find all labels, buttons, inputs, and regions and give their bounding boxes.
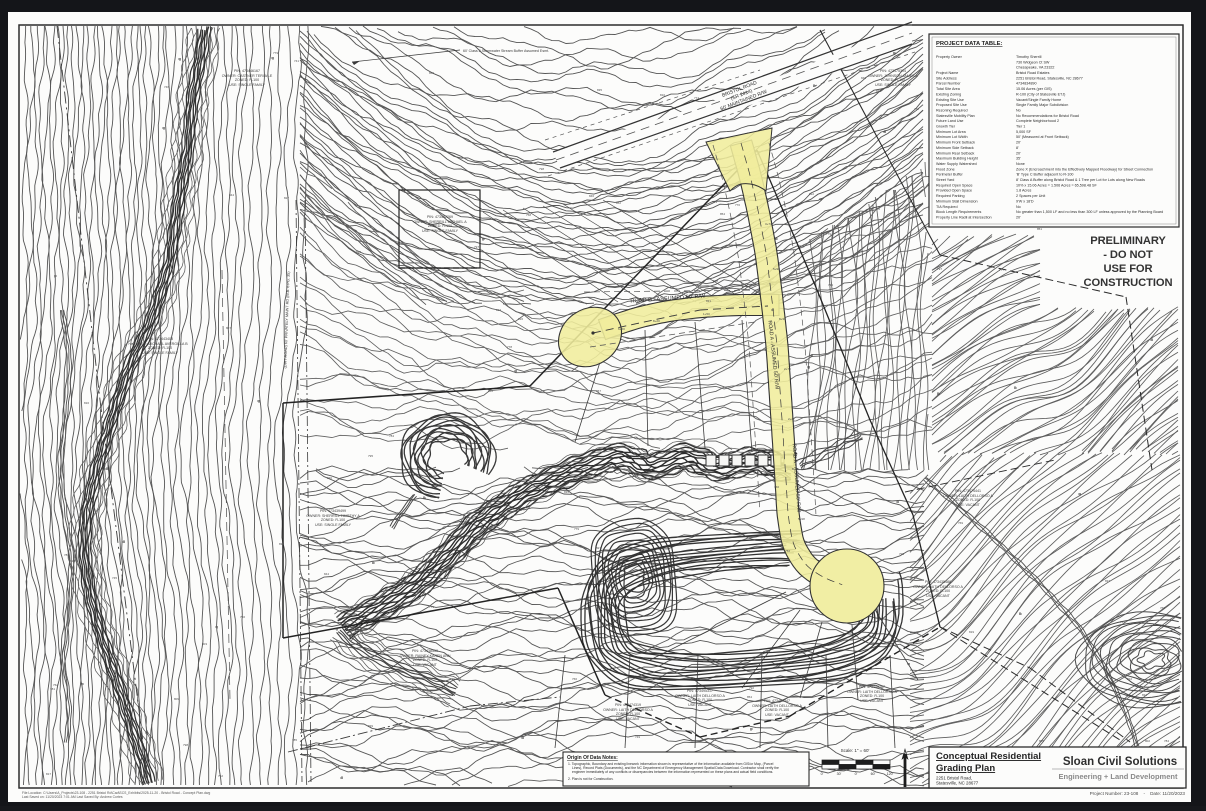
svg-text:Rezoning Required: Rezoning Required [936, 109, 968, 113]
svg-text:USE FOR: USE FOR [1103, 263, 1152, 275]
svg-text:784: 784 [389, 434, 394, 438]
svg-text:787: 787 [650, 685, 655, 689]
svg-text:2+73: 2+73 [784, 367, 791, 371]
svg-text:837: 837 [279, 542, 284, 546]
svg-text:8': 8' [1016, 146, 1019, 150]
svg-text:USE: SINGLE FAMILY: USE: SINGLE FAMILY [875, 83, 912, 87]
svg-text:779: 779 [273, 51, 278, 55]
svg-text:Minimum Front Setback: Minimum Front Setback [936, 141, 975, 145]
svg-text:Zone X (Encroachment into the: Zone X (Encroachment into the Effectivel… [1016, 167, 1153, 171]
svg-text:752: 752 [218, 774, 223, 778]
svg-text:Perimeter Buffer: Perimeter Buffer [936, 173, 964, 177]
svg-text:PIN: 473474441: PIN: 473474441 [955, 489, 981, 493]
svg-text:Minimum Stall Dimension: Minimum Stall Dimension [936, 199, 978, 203]
svg-text:Bristol Road Estates: Bristol Road Estates [1016, 71, 1050, 75]
svg-text:TIA Required: TIA Required [936, 205, 958, 209]
svg-text:839: 839 [368, 724, 373, 728]
svg-text:756: 756 [240, 615, 245, 619]
svg-text:846: 846 [589, 194, 594, 198]
svg-text:Required Parking: Required Parking [936, 194, 965, 198]
svg-text:Maximum Building Height: Maximum Building Height [936, 157, 978, 161]
svg-text:ZONED: R-100: ZONED: R-100 [926, 589, 950, 593]
svg-text:ZONED: R-100: ZONED: R-100 [881, 78, 905, 82]
svg-text:766: 766 [774, 485, 779, 489]
svg-text:816: 816 [518, 317, 523, 321]
svg-text:USE: VACANT: USE: VACANT [926, 594, 951, 598]
svg-text:749: 749 [635, 735, 640, 739]
svg-text:PIN: 473452269: PIN: 473452269 [427, 215, 453, 219]
svg-text:832: 832 [876, 89, 881, 93]
svg-text:Property Line Radii at Interse: Property Line Radii at Intersection [936, 216, 992, 220]
svg-text:827: 827 [284, 196, 289, 200]
svg-text:844: 844 [324, 572, 329, 576]
svg-text:848: 848 [713, 279, 718, 283]
svg-text:Minimum Lot Width: Minimum Lot Width [936, 135, 968, 139]
svg-text:784: 784 [1164, 739, 1169, 743]
svg-text:Minimum Lot Area: Minimum Lot Area [936, 130, 967, 134]
svg-text:Flood Zone: Flood Zone [936, 167, 955, 171]
svg-text:745: 745 [112, 576, 117, 580]
svg-text:None: None [1016, 162, 1025, 166]
svg-text:799: 799 [712, 200, 717, 204]
svg-text:846: 846 [861, 76, 866, 80]
svg-text:USE: SINGLE FAMILY: USE: SINGLE FAMILY [422, 229, 459, 233]
svg-text:803: 803 [202, 642, 207, 646]
svg-text:5+90: 5+90 [773, 267, 780, 271]
svg-text:PIN: 473474319: PIN: 473474319 [615, 703, 641, 707]
svg-text:851: 851 [1037, 227, 1042, 231]
svg-text:No: No [1016, 109, 1021, 113]
svg-text:USE: VACANT: USE: VACANT [860, 699, 885, 703]
svg-text:822: 822 [1127, 677, 1132, 681]
svg-text:PIN: 473439499: PIN: 473439499 [320, 509, 346, 513]
svg-text:No: No [1016, 205, 1021, 209]
svg-text:ZONED: R-100: ZONED: R-100 [235, 78, 259, 82]
svg-text:778: 778 [507, 345, 512, 349]
svg-text:6+60: 6+60 [618, 327, 625, 331]
svg-text:779: 779 [826, 232, 831, 236]
svg-text:USE: VACANT: USE: VACANT [765, 713, 790, 717]
svg-text:PIN: 473438559: PIN: 473438559 [412, 649, 438, 653]
svg-text:8+20: 8+20 [653, 319, 660, 323]
svg-text:774: 774 [694, 96, 699, 100]
svg-text:50' (Measured at Front Setback: 50' (Measured at Front Setback) [1016, 135, 1069, 139]
svg-text:810: 810 [660, 93, 665, 97]
svg-text:ZONED: R-100: ZONED: R-100 [688, 698, 712, 702]
svg-text:ZONED: R-100: ZONED: R-100 [616, 712, 640, 716]
svg-text:Chesapeake, VA 23322: Chesapeake, VA 23322 [1016, 66, 1054, 70]
svg-text:805: 805 [1039, 739, 1044, 743]
svg-text:PIN: 473475304: PIN: 473475304 [880, 69, 906, 73]
svg-text:Tier 1: Tier 1 [1016, 125, 1025, 129]
svg-text:Statesville Mobility Plan: Statesville Mobility Plan [936, 114, 975, 118]
svg-text:839: 839 [356, 250, 361, 254]
svg-text:Scale: 1" = 60': Scale: 1" = 60' [841, 748, 870, 753]
svg-text:2251 Bristol Road, Statesville: 2251 Bristol Road, Statesville, NC 28677 [1016, 76, 1083, 80]
svg-text:4734834890: 4734834890 [1016, 82, 1037, 86]
svg-text:ZONED: R-100: ZONED: R-100 [765, 708, 789, 712]
svg-text:831: 831 [706, 299, 711, 303]
svg-text:Single Family Major Subdivisio: Single Family Major Subdivision [1016, 103, 1068, 107]
svg-text:USE: SINGLE FAMILY: USE: SINGLE FAMILY [315, 523, 352, 527]
svg-text:Grading Plan: Grading Plan [936, 763, 995, 774]
svg-text:35': 35' [1016, 157, 1021, 161]
svg-text:1.8 Acres: 1.8 Acres [1016, 189, 1032, 193]
svg-text:Site Address: Site Address [936, 76, 957, 80]
svg-text:813: 813 [496, 308, 501, 312]
svg-text:Street Yard: Street Yard [936, 178, 954, 182]
svg-text:852: 852 [616, 201, 621, 205]
svg-text:20': 20' [1016, 151, 1021, 155]
svg-text:751: 751 [1120, 620, 1125, 624]
svg-text:835: 835 [564, 490, 569, 494]
svg-text:No Recommendations for Bristol: No Recommendations for Bristol Road [1016, 114, 1079, 118]
svg-text:PIN: 473435488: PIN: 473435488 [925, 580, 951, 584]
svg-text:2. Plan is not for Construct: 2. Plan is not for Construction. [568, 777, 613, 781]
svg-text:817: 817 [46, 772, 51, 776]
svg-text:ZONED: R-100: ZONED: R-100 [428, 224, 452, 228]
svg-text:ZONED: R-100: ZONED: R-100 [956, 498, 980, 502]
svg-text:781: 781 [50, 687, 55, 691]
svg-text:752: 752 [785, 549, 790, 553]
svg-text:836: 836 [131, 719, 136, 723]
svg-text:792: 792 [680, 717, 685, 721]
svg-text:Vacant/Single Family Home: Vacant/Single Family Home [1016, 98, 1061, 102]
svg-text:837: 837 [1105, 579, 1110, 583]
svg-text:Property Owner: Property Owner [936, 55, 963, 59]
svg-text:Last Saved on: 11/20/2023 7:01: Last Saved on: 11/20/2023 7:01 AM Last S… [22, 795, 123, 799]
svg-text:799: 799 [899, 552, 904, 556]
svg-text:PIN: 473443408: PIN: 473443408 [147, 337, 173, 341]
svg-text:770: 770 [735, 203, 740, 207]
svg-text:827: 827 [596, 546, 601, 550]
svg-text:PROJECT DATA TABLE:: PROJECT DATA TABLE: [936, 41, 1003, 47]
svg-text:767: 767 [596, 389, 601, 393]
svg-text:Sloan Civil Solutions: Sloan Civil Solutions [1063, 756, 1177, 768]
svg-text:781: 781 [64, 553, 69, 557]
svg-text:832: 832 [809, 192, 814, 196]
svg-text:USE: SINGLE FAMILY: USE: SINGLE FAMILY [142, 351, 179, 355]
svg-text:Provided Open Space: Provided Open Space [936, 189, 972, 193]
svg-text:ZONED: R-100: ZONED: R-100 [321, 518, 345, 522]
svg-text:8+20: 8+20 [792, 467, 799, 471]
svg-text:No greater than 1,500 LF and n: No greater than 1,500 LF and no less tha… [1016, 210, 1163, 214]
svg-text:Origin Of Data Notes:: Origin Of Data Notes: [567, 755, 618, 761]
svg-text:Block Length Requirements: Block Length Requirements [936, 210, 981, 214]
svg-text:Total Site Area: Total Site Area [936, 87, 961, 91]
svg-text:Existing Site Use: Existing Site Use [936, 98, 964, 102]
svg-text:779: 779 [574, 527, 579, 531]
svg-text:844: 844 [229, 193, 234, 197]
svg-text:848: 848 [644, 474, 649, 478]
svg-text:Minimum Rear Setback: Minimum Rear Setback [936, 151, 974, 155]
svg-text:- DO NOT: - DO NOT [1103, 249, 1153, 261]
svg-text:PIN: 473448787: PIN: 473448787 [859, 685, 885, 689]
svg-text:Parcel Number: Parcel Number [936, 82, 961, 86]
svg-text:772: 772 [914, 107, 919, 111]
svg-text:843: 843 [429, 71, 434, 75]
svg-text:USE: VACANT: USE: VACANT [413, 663, 438, 667]
svg-text:797: 797 [474, 245, 479, 249]
svg-text:1+50: 1+50 [703, 312, 710, 316]
svg-text:828: 828 [70, 559, 75, 563]
svg-text:816: 816 [84, 401, 89, 405]
svg-text:USE: VACANT: USE: VACANT [688, 703, 713, 707]
svg-text:30': 30' [837, 772, 842, 776]
svg-text:120': 120' [887, 772, 894, 776]
svg-text:830: 830 [327, 476, 332, 480]
svg-text:766: 766 [572, 677, 577, 681]
svg-text:15.06 Acres (per GIS): 15.06 Acres (per GIS) [1016, 87, 1052, 91]
svg-text:744: 744 [828, 283, 833, 287]
svg-text:N: N [904, 750, 907, 755]
svg-text:ZONED: R-100: ZONED: R-100 [860, 694, 884, 698]
svg-text:785: 785 [292, 738, 297, 742]
svg-text:engineer immediately of any co: engineer immediately of any conflicts or… [572, 770, 773, 774]
svg-text:5,000 SF: 5,000 SF [1016, 130, 1032, 134]
svg-text:Complete Neighborhood 2: Complete Neighborhood 2 [1016, 119, 1059, 123]
svg-text:758: 758 [526, 213, 531, 217]
svg-text:USE: SINGLE FAMILY: USE: SINGLE FAMILY [229, 83, 266, 87]
svg-text:USE: VACANT: USE: VACANT [616, 717, 641, 721]
svg-text:798: 798 [539, 167, 544, 171]
svg-text:846: 846 [488, 389, 493, 393]
svg-text:Existing Zoning: Existing Zoning [936, 92, 961, 96]
svg-text:8' Class A Buffer along Bristo: 8' Class A Buffer along Bristol Road & 1… [1016, 178, 1145, 182]
svg-text:746: 746 [164, 85, 169, 89]
svg-text:PIN: 473496347: PIN: 473496347 [764, 699, 790, 703]
svg-text:771: 771 [429, 605, 434, 609]
svg-text:3+73: 3+73 [765, 222, 772, 226]
svg-text:9'W x 18'D: 9'W x 18'D [1016, 199, 1034, 203]
svg-text:Future Land Use: Future Land Use [936, 119, 963, 123]
svg-text:770: 770 [875, 207, 880, 211]
svg-text:Statesville, NC 28677: Statesville, NC 28677 [936, 781, 979, 786]
svg-text:Project Name: Project Name [936, 71, 958, 75]
svg-text:769: 769 [1160, 606, 1165, 610]
svg-text:797: 797 [937, 267, 942, 271]
svg-text:780: 780 [869, 635, 874, 639]
svg-text:PIN: 473446167: PIN: 473446167 [234, 69, 260, 73]
svg-text:10% x 15.06 Acres = 1.506 Acre: 10% x 15.06 Acres = 1.506 Acres = 65,598… [1016, 183, 1098, 187]
svg-text:Growth Tier: Growth Tier [936, 125, 956, 129]
svg-text:Minimum Side Setback: Minimum Side Setback [936, 146, 974, 150]
svg-text:837: 837 [226, 326, 231, 330]
svg-text:ZONED: R-100: ZONED: R-100 [413, 658, 437, 662]
svg-text:798: 798 [183, 743, 188, 747]
svg-text:854: 854 [747, 695, 752, 699]
svg-text:'B' Type C Buffer adjacent to: 'B' Type C Buffer adjacent to R-100 [1016, 173, 1073, 177]
svg-text:CONSTRUCTION: CONSTRUCTION [1084, 277, 1173, 289]
svg-text:819: 819 [969, 630, 974, 634]
svg-text:802: 802 [113, 669, 118, 673]
svg-text:806: 806 [435, 569, 440, 573]
svg-text:777: 777 [999, 268, 1004, 272]
svg-text:854: 854 [720, 212, 725, 216]
svg-text:821: 821 [152, 294, 157, 298]
svg-text:0': 0' [821, 772, 824, 776]
svg-text:769: 769 [958, 521, 963, 525]
svg-text:809: 809 [174, 697, 179, 701]
svg-text:Conceptual Residential: Conceptual Residential [936, 751, 1041, 762]
svg-text:Timothy Sherrill: Timothy Sherrill [1016, 55, 1042, 59]
svg-text:0': 0' [855, 772, 858, 776]
svg-text:835: 835 [597, 88, 602, 92]
svg-text:Water Supply Watershed: Water Supply Watershed [936, 162, 977, 166]
svg-text:Proposed Site Use: Proposed Site Use [936, 103, 967, 107]
svg-text:ZONED: R-100: ZONED: R-100 [148, 346, 172, 350]
svg-text:5+98: 5+98 [798, 517, 805, 521]
svg-text:PRELIMINARY: PRELIMINARY [1090, 235, 1166, 247]
svg-text:60' Class 2 Stormwater Stream: 60' Class 2 Stormwater Stream Buffer Ass… [463, 49, 549, 53]
svg-text:792: 792 [749, 686, 754, 690]
svg-text:741: 741 [294, 59, 299, 63]
svg-text:2+47: 2+47 [788, 417, 795, 421]
svg-text:R-100 (City of Statesville ETJ: R-100 (City of Statesville ETJ) [1016, 92, 1065, 96]
svg-text:730 Widgeon Ct SW: 730 Widgeon Ct SW [1016, 60, 1050, 64]
svg-text:834: 834 [1142, 693, 1147, 697]
svg-text:PIN: 473495317: PIN: 473495317 [687, 689, 713, 693]
svg-text:795: 795 [368, 454, 373, 458]
svg-text:20': 20' [1016, 141, 1021, 145]
svg-text:2 Spaces per Unit: 2 Spaces per Unit [1016, 194, 1045, 198]
svg-text:USE: VACANT: USE: VACANT [956, 503, 981, 507]
svg-text:Required Open Space: Required Open Space [936, 183, 973, 187]
svg-text:20': 20' [1016, 216, 1021, 220]
svg-text:60': 60' [871, 772, 876, 776]
svg-text:802: 802 [1145, 739, 1150, 743]
svg-text:8+30: 8+30 [779, 317, 786, 321]
svg-text:Project Number: 23-108 -: Project Number: 23-108 - Date: 11/20/202… [1090, 791, 1186, 796]
svg-text:Engineering + Land Development: Engineering + Land Development [1059, 772, 1178, 781]
